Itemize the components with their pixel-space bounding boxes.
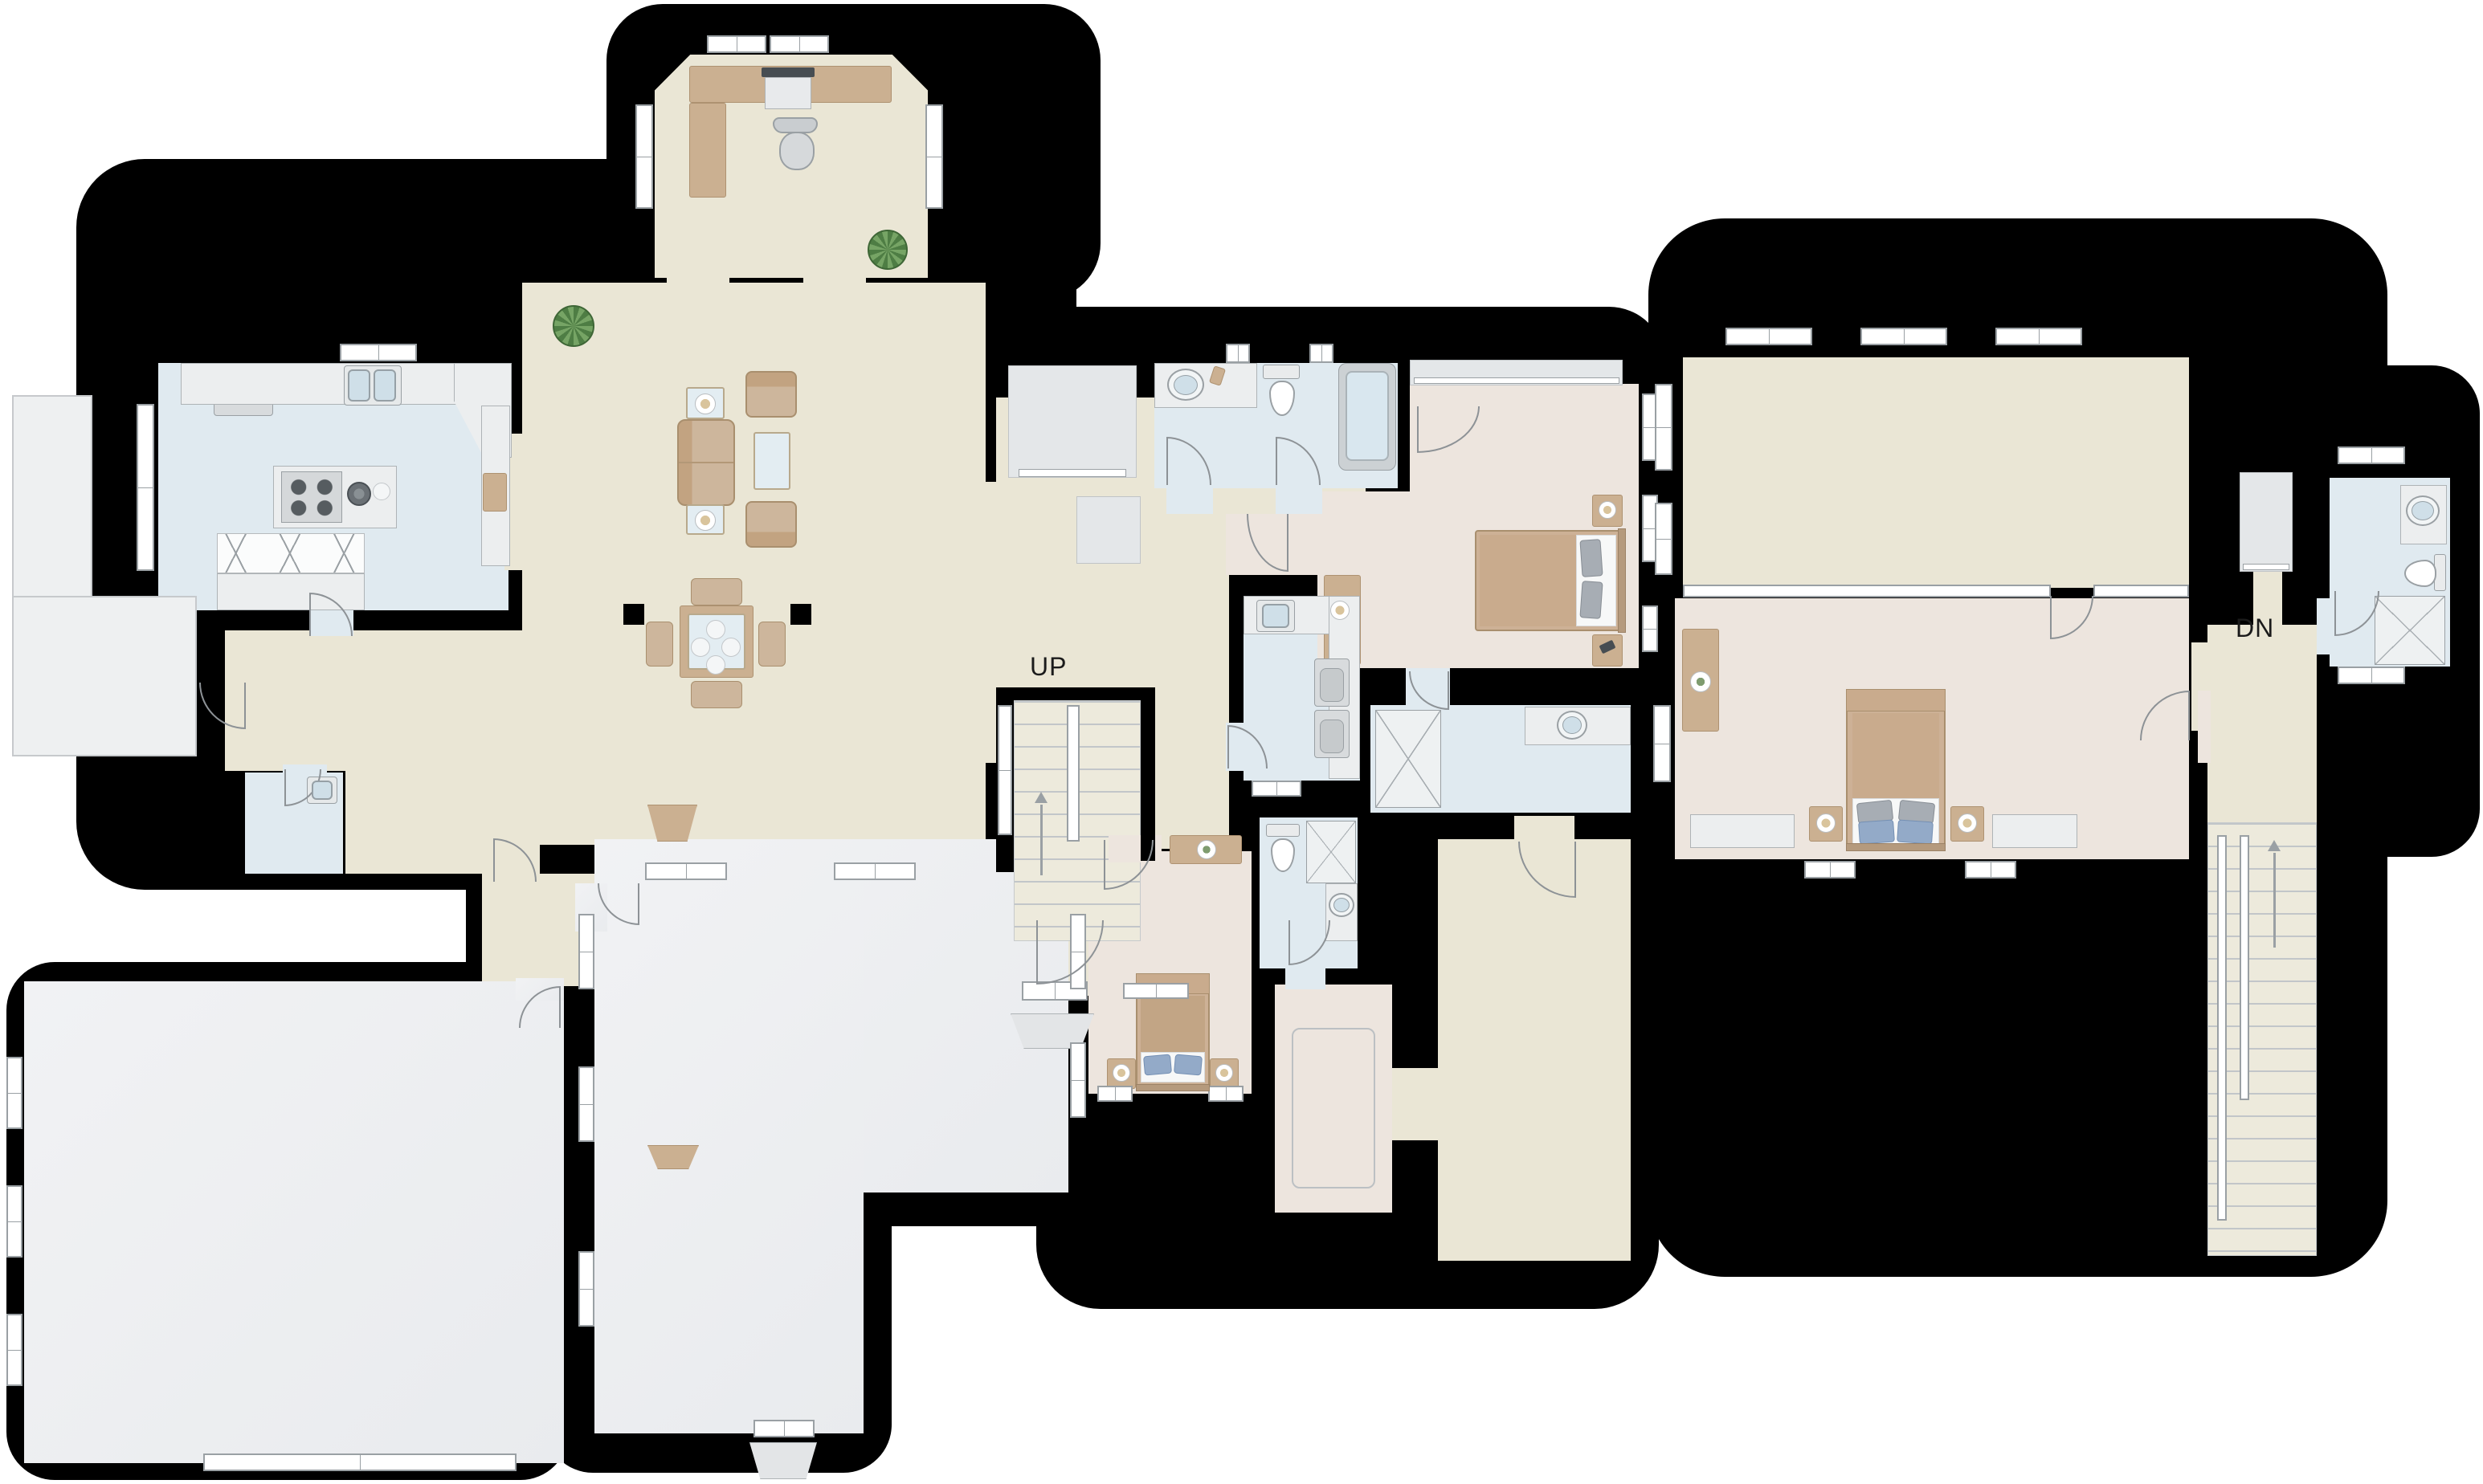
master-bed-blanket: [1852, 713, 1939, 803]
opening-office-living-right: [803, 273, 866, 305]
office-chair-seat: [779, 132, 815, 170]
utility-sink-basin: [312, 781, 333, 800]
window-living-south-left: [645, 862, 727, 880]
window-office-top-left: [707, 35, 766, 53]
window-bath1-right: [1309, 344, 1333, 363]
window-stairwell: [998, 705, 1012, 835]
dining-chair-south: [691, 681, 742, 708]
window-bigroom-west-c: [578, 1251, 594, 1327]
bathtub-inner: [1346, 371, 1389, 461]
bath1-sink-inner: [1174, 375, 1198, 395]
sliding-door-closet-bed1: [1414, 377, 1619, 384]
bed1-pillow-top: [1579, 539, 1603, 577]
garage-door: [203, 1453, 517, 1471]
window-garage-a: [6, 1057, 22, 1129]
floor-sitting-room: [1683, 357, 2189, 588]
dryer-door: [1320, 720, 1344, 753]
side-table-south-lamp: [695, 510, 716, 531]
window-sitting-north-b: [1860, 328, 1947, 345]
office-plant: [868, 230, 908, 270]
window-garage-c: [6, 1314, 22, 1386]
bed1-desk-lamp: [1330, 601, 1350, 620]
master-window-bench-west: [1690, 814, 1795, 848]
doorgap-master-bath: [2317, 598, 2334, 654]
wall-stair-right: [1141, 687, 1155, 861]
bed2-dresser-decor: [1197, 840, 1216, 859]
window-bath1-left: [1226, 344, 1250, 363]
stair-arrow-up-line: [1040, 805, 1043, 875]
stair-arrow-up-head: [1035, 792, 1048, 803]
south-porch-step: [749, 1442, 817, 1479]
master-window-bench-east: [1992, 814, 2077, 848]
cooking-pot: [347, 482, 371, 506]
window-office-west: [635, 104, 653, 209]
bed2-headboard: [1136, 1084, 1210, 1091]
master-pillow-blue-right: [1897, 819, 1934, 844]
window-bench-backs: [217, 533, 365, 573]
opening-landing-master: [2198, 691, 2211, 763]
door-bigroom-south: [753, 1420, 815, 1437]
sitting-railing-east: [2093, 585, 2189, 597]
bed1-pillow-bottom: [1579, 581, 1603, 619]
stairs-down-label: DN: [2236, 614, 2274, 643]
window-foyer: [1123, 983, 1189, 999]
side-table-north-lamp: [695, 393, 716, 414]
floor-patio-lower: [12, 596, 197, 756]
doorgap-bath2: [1285, 962, 1325, 989]
master-nightstand-west-lamp: [1816, 813, 1836, 833]
window-bed2-left: [1097, 1086, 1133, 1102]
dining-chair-east: [758, 622, 786, 667]
bath2-sink-inner: [1333, 898, 1350, 912]
master-headboard: [1846, 843, 1946, 851]
bath2-toilet-tank: [1266, 824, 1300, 837]
living-plant: [553, 305, 594, 347]
bed2-blanket: [1141, 996, 1205, 1057]
stairs-up-label: UP: [1030, 652, 1067, 682]
floor-landing: [2207, 625, 2317, 822]
floor-garage: [24, 981, 564, 1463]
window-masterbath-south: [2338, 667, 2405, 684]
bed1-nightstand-north-lamp: [1599, 501, 1616, 519]
den-rug: [1292, 1028, 1375, 1188]
sofa: [677, 419, 735, 506]
window-kitchen-west: [137, 404, 154, 571]
dining-chair-north: [691, 578, 742, 605]
bed2-pillow-left: [1143, 1054, 1172, 1076]
kitchen-counter-main: [181, 363, 486, 405]
floor-living-room: [522, 283, 986, 845]
opening-living-hallsouth: [498, 642, 534, 763]
bath2-shower: [1306, 821, 1356, 883]
dining-plate-north: [706, 620, 725, 639]
cooktop: [281, 471, 342, 523]
window-bigroom-west-b: [578, 1066, 594, 1142]
floor-closet-master: [2240, 472, 2293, 572]
bed1-headboard: [1618, 528, 1626, 633]
sliding-door-closet-master: [2243, 564, 2289, 570]
window-bed2-right: [1208, 1086, 1244, 1102]
kitchen-sink-basin-right: [374, 369, 396, 402]
armchair-north: [745, 371, 797, 418]
laptop-screen: [762, 67, 815, 77]
dining-plate-east: [721, 638, 741, 657]
living-column-west: [623, 604, 644, 625]
master-bath-shower: [2375, 596, 2445, 665]
window-garage-b: [6, 1185, 22, 1258]
bed2-pillow-right: [1174, 1054, 1203, 1076]
master-bed-canopy: [1846, 689, 1946, 711]
opening-office-living-left: [667, 273, 729, 305]
master-dresser-decor: [1690, 671, 1711, 692]
dining-plate-south: [706, 655, 725, 675]
doorgap-bath1-left: [1166, 482, 1213, 514]
window-bed1-south: [1642, 605, 1658, 652]
kitchen-plate: [373, 483, 390, 500]
stair-rail-up: [1067, 705, 1080, 842]
office-chair-back: [773, 117, 818, 133]
floor-closet-hall: [1076, 496, 1141, 564]
floor-hall-south: [225, 630, 522, 771]
window-sitting-north-c: [1995, 328, 2082, 345]
window-living-south-right: [834, 862, 916, 880]
doorgap-bath1-right: [1276, 482, 1322, 514]
window-sitting-west-b: [1655, 503, 1672, 575]
bed2-nightstand-east-lamp: [1215, 1064, 1233, 1082]
window-office-east: [925, 104, 943, 209]
laundry-sink-basin: [1262, 604, 1289, 628]
floor-bigroom-b: [594, 839, 864, 1433]
master-bath-sink-inner: [2412, 501, 2434, 520]
washer-door: [1320, 668, 1344, 702]
kitchen-sink-basin-left: [348, 369, 370, 402]
floor-walkin-closet: [1438, 839, 1631, 1261]
window-master-south-a: [1804, 861, 1856, 879]
window-master-west: [1653, 705, 1671, 782]
window-laundry-south: [1252, 781, 1301, 797]
window-bigroom-west-a: [578, 914, 594, 989]
window-bench-seat: [217, 573, 365, 610]
sliding-door-closet-entry: [1019, 469, 1126, 477]
window-masterbath-north: [2338, 446, 2405, 464]
floor-plan: UP DN: [0, 0, 2483, 1484]
master-pillow-blue-left: [1858, 819, 1895, 844]
cutting-board: [483, 473, 507, 512]
coffee-table: [753, 432, 790, 490]
doorgap-walkin-closet: [1514, 816, 1574, 843]
window-sitting-north-a: [1725, 328, 1812, 345]
dining-plate-west: [691, 638, 710, 657]
sitting-railing-west: [1683, 585, 2051, 597]
stair-arrow-down-head: [2268, 840, 2281, 851]
bath3-shower: [1375, 710, 1441, 808]
living-column-east: [790, 604, 811, 625]
bath3-sink-inner: [1562, 716, 1582, 734]
stair-arrow-down-line: [2273, 853, 2276, 948]
master-nightstand-east-lamp: [1958, 813, 1977, 833]
bed1-blanket: [1480, 535, 1579, 626]
window-bigroom-east-b: [1070, 1042, 1086, 1118]
floor-patio-upper: [12, 395, 92, 597]
opening-den-closet: [1392, 1068, 1440, 1140]
floor-closet-entry: [1008, 365, 1137, 478]
laptop-keyboard: [765, 77, 811, 109]
window-sitting-west-a: [1655, 384, 1672, 471]
dining-chair-west: [646, 622, 673, 667]
stair-rail-down-b: [2240, 835, 2249, 1100]
bed2-nightstand-west-lamp: [1113, 1064, 1130, 1082]
stair-rail-down-a: [2217, 835, 2227, 1221]
office-desk-return: [689, 103, 726, 198]
wall-stair-top: [996, 687, 1154, 700]
armchair-south: [745, 501, 797, 548]
window-kitchen-north: [340, 344, 417, 361]
bath1-toilet-tank: [1263, 365, 1300, 379]
window-master-south-b: [1965, 861, 2016, 879]
window-office-top-right: [770, 35, 829, 53]
